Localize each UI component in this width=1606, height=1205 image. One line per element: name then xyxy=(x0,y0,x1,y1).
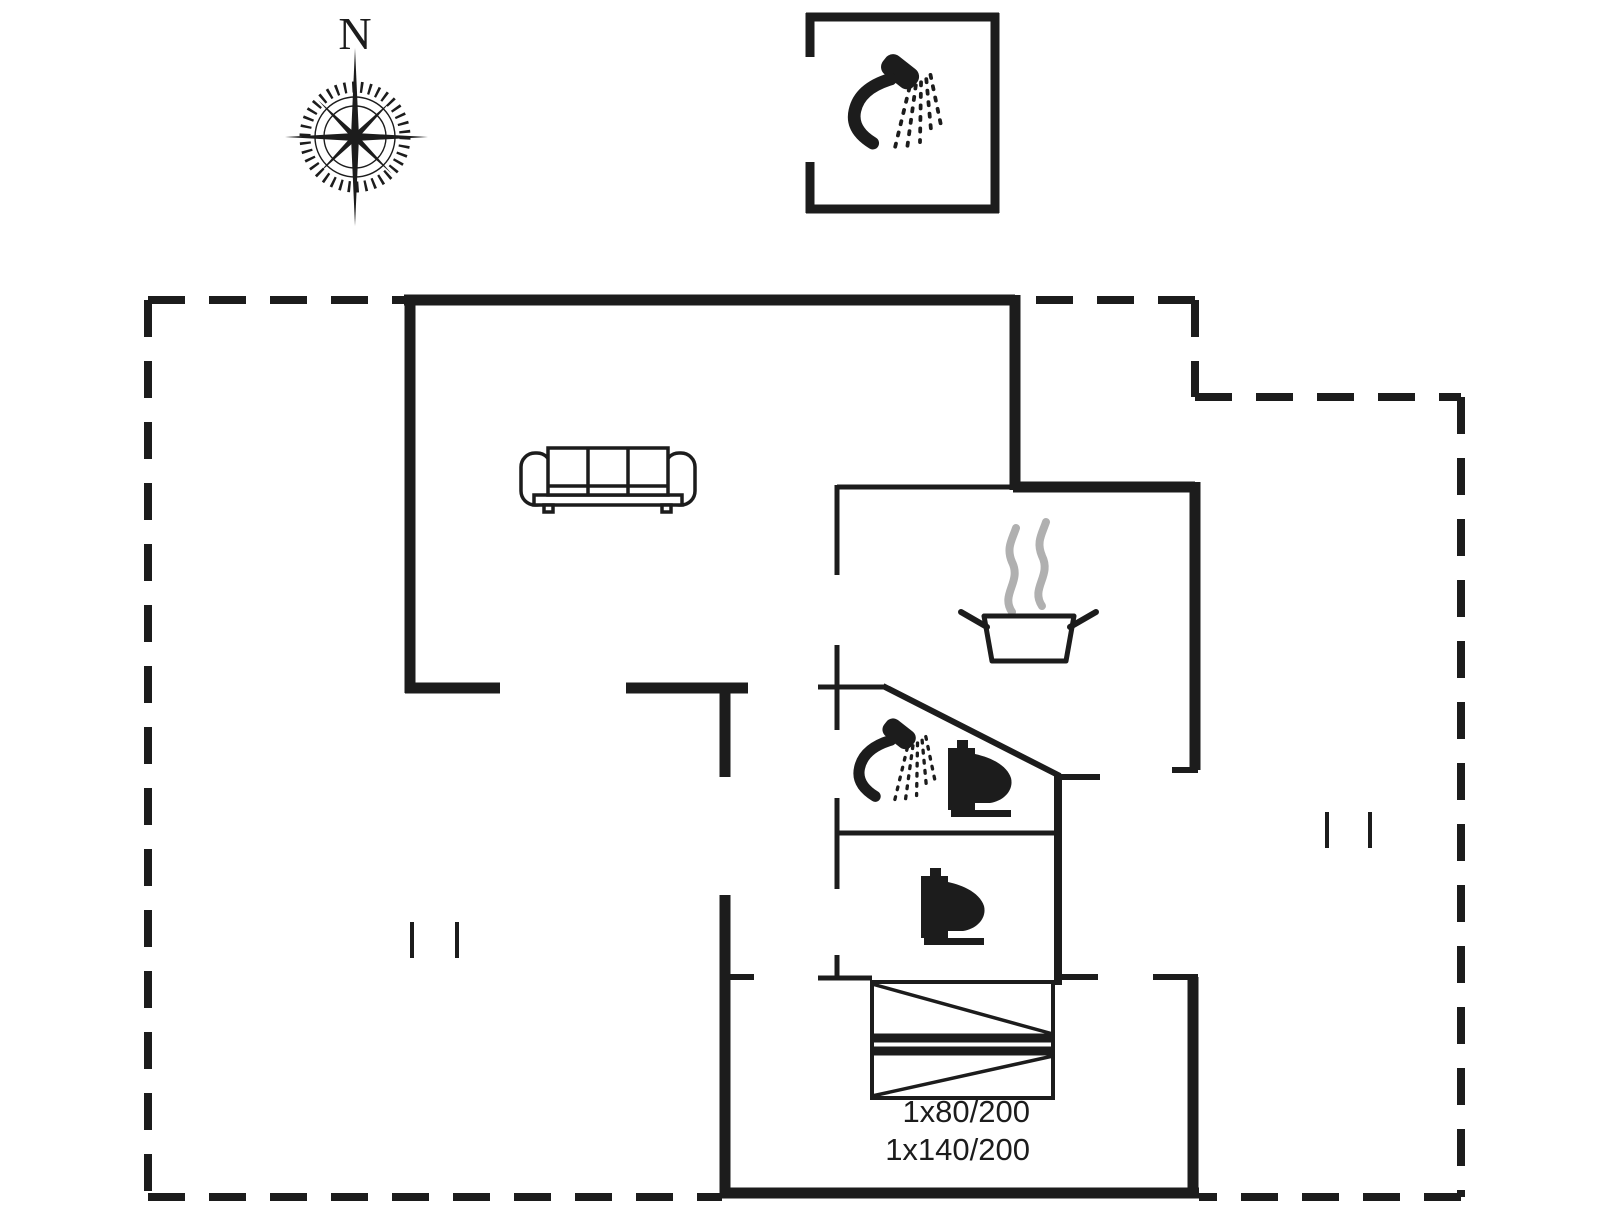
sofa-icon xyxy=(521,448,695,512)
shower-icon xyxy=(859,715,935,801)
compass-rose-icon: N xyxy=(285,8,428,226)
steam-icon xyxy=(1008,522,1046,612)
north-label: N xyxy=(338,8,371,59)
shower-icon xyxy=(854,50,941,148)
house-exterior-walls xyxy=(404,295,1199,1198)
floor-plan-page: N 1x80/200 1x140/200 xyxy=(0,0,1606,1205)
toilet-icon xyxy=(921,868,985,945)
bunk-bed-icon xyxy=(872,982,1053,1098)
toilet-icon xyxy=(948,740,1012,817)
bed-dimension-label-2: 1x140/200 xyxy=(885,1132,1030,1167)
terrace-boundary xyxy=(148,300,1461,1197)
floor-plan-drawing: N 1x80/200 1x140/200 xyxy=(0,0,1606,1205)
cooking-pot-icon xyxy=(961,522,1096,661)
bed-dimension-label-1: 1x80/200 xyxy=(902,1094,1030,1129)
